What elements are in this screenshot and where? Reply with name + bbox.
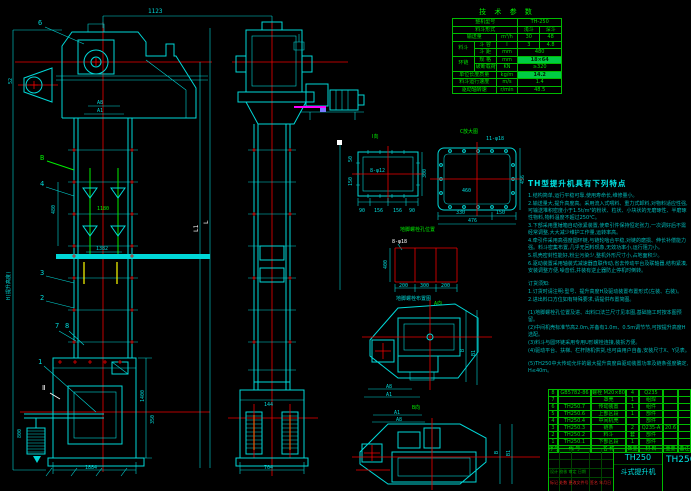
anchor-holes: 8-φ18 [392,239,407,245]
bom-cell: 螺栓 M20×80 [591,389,626,397]
anchor-title: 地脚螺栓孔位置 [400,226,435,233]
bom-cell [663,418,678,425]
tech-vol-unit: l [496,41,518,49]
balloon-b: B [40,154,44,162]
tech-table-title: 技 术 参 数 [452,7,562,17]
view-i-left2: 150 [348,177,354,186]
feature-line: 2.输送量大,提升高度高。采用流入式喂料、重力式卸料,对物料适应性强,可输送堆积… [528,201,690,222]
bom-cell: 下部区段 [591,439,626,446]
balloon-4: 4 [40,180,44,188]
feature-line: 5.机壳密封性能好,粉尘污染少,整机外形尺寸小,占地面积少。 [528,253,690,260]
bom-cell: Q235 [639,389,663,397]
features-notes-block: TH型提升机具有下列特点 1.结构简单,运行平稳可靠,使用寿命长,维修量小。2.… [528,178,690,390]
bom-cell: 传动装置 [591,404,626,411]
dim-height: H(提升高度) [5,271,12,300]
bom-cell [678,397,691,404]
view-c-holes: 11-φ18 [486,136,504,142]
bom-cell [663,411,678,418]
view-i-b0: 90 [359,208,365,214]
aux-dim-a8: A8 [396,417,402,423]
tech-vol-v1: 3 [518,41,540,49]
aux-dim-a1: A1 [394,410,400,416]
view-i-right: 300 [422,169,428,178]
bom-cell: 组焊 [639,397,663,404]
tech-rpm-value: 48.5 [518,86,562,94]
anchor-b1: 300 [420,283,429,289]
bom-cell: 1 [548,439,558,446]
bom-cell: 2 [626,425,639,432]
bom-cell [678,418,691,425]
plan-dim-b: B [460,349,466,352]
feature-line: (2)中间机壳标准节高2.0m,并备有1.0m、0.5m调节节,可按提升高度H选… [528,325,690,339]
bom-cell: 组件 [639,404,663,411]
view-c-right: 456 [520,175,526,184]
balloon-6: 6 [38,19,42,27]
balloon-3: 3 [40,269,44,277]
bom-cell [678,439,691,446]
feature-line: (1)地脚螺栓孔位置及进、出料口法兰尺寸见本图,基础施工时按本图预留。 [528,310,690,324]
tech-pitch-value: 480 [518,49,562,57]
bom-cell [558,397,591,404]
dim-1180: 1180 [97,206,109,212]
plan-label: A向 [434,300,442,307]
anchor-b0: 200 [399,283,408,289]
tech-chain-group: 环链 [453,56,475,71]
tech-pitch-unit: mm [496,49,518,57]
plan-view: A向 B B1 A8 A1 [362,300,492,398]
view-i-left1: 50 [348,156,354,162]
plan-dim-a8: A8 [386,384,392,390]
view-c-b2: 150 [496,210,505,216]
bom-cell [663,404,678,411]
title-block: 设计 校核 审定 日期 标记 处数 更改文件号 签名 年月日 TH250 斗式提… [548,448,691,491]
dim-boot-width: 1884 [85,465,97,471]
tech-bucket-group: 料斗 [453,41,475,56]
side-view: 144 704 L1 L [193,22,364,476]
tech-bucket-deep: 深斗 [540,26,562,34]
bom-cell [678,389,691,397]
dim-704: 704 [264,465,273,471]
tech-speed-value: 1.4 [518,79,562,87]
anchor-b2: 200 [441,283,450,289]
bom-cell [678,425,691,432]
bom-cell: 部件 [639,411,663,418]
tech-speed-label: 料斗运行速度 [453,79,497,87]
view-c-label: C放大图 [460,128,478,135]
tech-bucket-shallow: 浅斗 [518,26,540,34]
title-block-right: TH250 [663,449,691,491]
dim-350: 350 [150,415,156,424]
bom-cell: 7 [548,397,558,404]
revision-block: 设计 校核 审定 日期 标记 处数 更改文件号 签名 年月日 [549,449,614,491]
bom-cell: TH250.4 [558,418,591,425]
tech-mass-value: 14.2 [518,71,562,79]
view-i-b1: 156 [374,208,383,214]
feature-line: 4.牵引件采用高强度圆环链,与链轮啮合平稳,对链的磨损、伸长补偿能力强。料斗密集… [528,238,690,252]
tech-mass-unit: kg/m [496,71,518,79]
feature-line [528,356,690,360]
bom-cell: 20.6 [663,425,678,432]
dim-l: L [203,220,210,224]
drawing-sheet: H(提升高度) 1123 52 A8 A1 6 1180 1382 [0,0,691,491]
balloon-2: 2 [40,294,44,302]
drawing-model: TH250 [614,453,662,462]
bom-cell: GB5782-86 [558,389,591,397]
bom-cell: TH250.1 [558,439,591,446]
bom-cell: 2 [548,432,558,439]
bom-cell: 4 [626,389,639,397]
view-c-inner: 460 [462,188,471,194]
tech-capacity-v2: 48 [540,34,562,42]
bom-cell: 4 [548,418,558,425]
bom-cell: 套 [626,432,639,439]
bom-cell [678,404,691,411]
staff-row: 设计 校核 审定 日期 [550,469,586,475]
balloon-1: 1 [38,358,42,366]
view-i-label: Ⅰ向 [372,133,378,140]
bom-cell: 料斗 [591,432,626,439]
bom-cell: 部件 [639,418,663,425]
section-view-c: C放大图 11-φ18 460 456 330 150 476 [430,128,526,224]
aux-dim-b: B [494,451,500,454]
bom-cell: 1 [626,439,639,446]
bom-cell: 中间机壳 [591,418,626,425]
bom-cell: TH250.6 [558,411,591,418]
bom-cell: 部件 [639,432,663,439]
tech-model-label: 整机型号 [453,19,518,27]
tech-capacity-unit: m³/h [496,34,518,42]
feature-line [528,305,690,309]
view-c-b1: 330 [456,210,465,216]
revision-row: 标记 处数 更改文件号 签名 年月日 [550,480,611,486]
dim-144: 144 [264,402,273,408]
view-c-btotal: 476 [468,218,477,224]
feature-line: 1.订货时请注明:型号、提升高度H及驱动装置布置形式(左装、右装)。 [528,289,690,296]
dim-52: 52 [8,78,14,84]
bom-cell: 上部区段 [591,411,626,418]
feature-line: 1.结构简单,运行平稳可靠,使用寿命长,维修量小。 [528,193,690,200]
bom-cell [663,439,678,446]
bom-cell: 5 [548,411,558,418]
bom-cell: 部件 [639,439,663,446]
balloon-8: 8 [65,322,69,330]
section-ii-marker: Ⅱ [42,384,45,392]
feature-line: (3)料斗与圆环链采用专用U形螺栓连接,装拆方便。 [528,340,690,347]
dim-1400: 1400 [140,390,146,402]
bom-cell: 6 [548,404,558,411]
bom-cell: 3 [548,425,558,432]
tech-vol-v2: 4.8 [540,41,562,49]
bom-cell: TH250.2 [558,432,591,439]
dim-top-width: 1123 [148,8,163,15]
bom-cell: 8 [548,389,558,397]
anchor-caption: 地脚螺栓布置图 [396,295,431,302]
view-i-b2: 156 [393,208,402,214]
bom-cell: 1 [626,411,639,418]
bom-cell [678,411,691,418]
tech-break-unit: KN [496,64,518,72]
bom-cell [663,389,678,397]
bom-cell: 1 [626,397,639,404]
tech-model-value: TH-250 [518,19,562,27]
drawing-name: 斗式提升机 [614,464,662,477]
bom-cell [663,432,678,439]
dim-1382: 1382 [96,246,108,252]
tech-break-value: ≥320 [518,64,562,72]
bom-cell: 1 [626,404,639,411]
tech-rpm-label: 驱动轴转速 [453,86,497,94]
bom-cell [626,418,639,425]
front-view: H(提升高度) 1123 52 A8 A1 6 1180 1382 [5,8,272,476]
dim-a1: A1 [97,108,103,114]
feature-line: 6.驱动装置采用轴装式减速器直联传动,省去传动平台及联轴器,结构紧凑,安装调整方… [528,261,690,275]
section-view-i: Ⅰ向 8-φ12 300 50 150 90 156 156 90 [348,133,428,214]
feature-line: (5)TH250中大传动允许的最大提升高度由驱动装置功率及链条强度确定,H≤40… [528,361,690,375]
tech-bucket-type-label: 料斗形式 [453,26,518,34]
anchor-bolt-detail: 地脚螺栓孔位置 8-φ18 400 200 300 200 地脚螺栓布置图 [383,226,457,302]
view-i-holes: 8-φ12 [370,168,385,174]
feature-line: (4)驱动平台、扶梯、栏杆随机供货,也可由用户自备,安装尺寸X、Y见表。 [528,348,690,355]
feature-line [528,276,690,280]
view-i-b3: 90 [409,208,415,214]
tech-mass-label: 单位长度质量 [453,71,497,79]
tech-spec-label: 规 格 [474,56,496,64]
tech-vol-label: 斗 容 [474,41,496,49]
tech-spec-value: 18×64 [518,56,562,64]
bom-table: 8GB5782-86螺栓 M20×804Q2357罩壳1组焊6TH250.7传动… [548,389,691,453]
aux-view: B向 A1 A8 B B1 [352,404,540,490]
tech-rpm-unit: r/min [496,86,518,94]
dim-a8: A8 [97,100,103,106]
tech-spec-unit: mm [496,56,518,64]
balloon-7: 7 [55,322,59,330]
dim-800: 800 [17,429,23,438]
features-title: TH型提升机具有下列特点 [528,178,690,189]
tech-break-label: 破断载荷 [474,64,496,72]
plan-dim-b1: B1 [471,350,477,356]
aux-label: B向 [412,404,420,411]
feature-line: 3.下部采用重锤箱自动张紧装置,使牵引件保持恒定张力,一次调好后不需经常调整,大… [528,223,690,237]
bom-cell: 链条 [591,425,626,432]
feature-line: 2.进出料口方位如有特殊要求,请提供布置简图。 [528,297,690,304]
dim-l1: L1 [193,224,200,232]
anchor-height: 400 [383,260,389,269]
title-block-main: TH250 斗式提升机 [614,449,663,491]
bom-cell: Q235-A [639,425,663,432]
dim-480: 480 [51,205,57,214]
tech-pitch-label: 斗 距 [474,49,496,57]
tech-capacity-label: 输送量 [453,34,497,42]
plan-dim-a1: A1 [386,392,392,398]
aux-dim-b1: B1 [506,450,512,456]
bom-cell [678,432,691,439]
bom-cell [663,397,678,404]
bom-cell: TH250.3 [558,425,591,432]
bom-cell: 罩壳 [591,397,626,404]
features-lines: 1.结构简单,运行平稳可靠,使用寿命长,维修量小。2.输送量大,提升高度高。采用… [528,193,690,375]
tech-speed-unit: m/s [496,79,518,87]
tech-capacity-v1: 30 [518,34,540,42]
feature-line: 订货须知: [528,281,690,288]
bom-cell: TH250.7 [558,404,591,411]
tech-parameters-table: 技 术 参 数 整机型号 TH-250 料斗形式 浅斗 深斗 输送量 m³/h … [452,7,562,94]
